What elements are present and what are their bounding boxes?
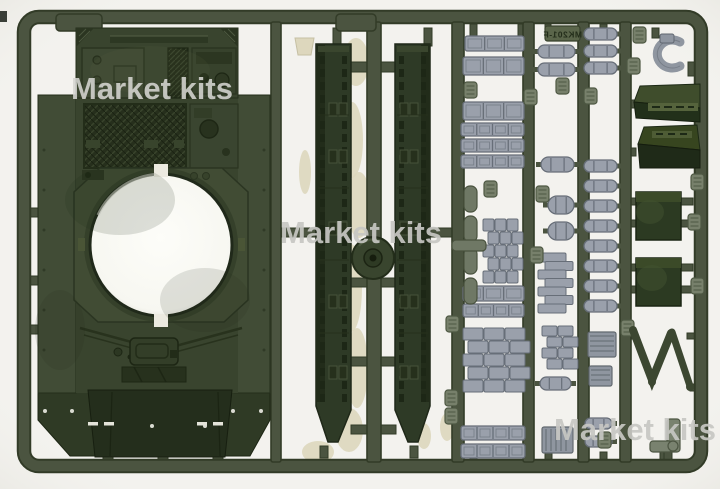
part-number-lug bbox=[464, 82, 477, 98]
sprue-gate bbox=[410, 446, 418, 458]
watermark-bottom-right: Market kits bbox=[554, 412, 716, 447]
cross-part bbox=[452, 240, 486, 251]
watermark-top-left: Market kits bbox=[71, 71, 233, 106]
track-link-stack bbox=[483, 219, 523, 283]
cylinder-part bbox=[579, 300, 622, 312]
skirt-hinge bbox=[400, 295, 408, 308]
part-number-lug bbox=[484, 181, 497, 197]
sprue-gate bbox=[380, 278, 396, 287]
skirt-hinge bbox=[329, 295, 337, 308]
cylinder-part bbox=[579, 260, 622, 272]
skirt-hinge bbox=[339, 295, 347, 308]
track-link-strip bbox=[461, 123, 524, 136]
capsule-part bbox=[464, 278, 477, 304]
skirt-hinge bbox=[339, 150, 347, 163]
track-link-strip bbox=[463, 304, 524, 317]
skirt-hinge bbox=[400, 366, 408, 379]
cylinder-part bbox=[579, 62, 622, 74]
angled-stowage-box-2 bbox=[638, 125, 700, 168]
skirt-hinge bbox=[329, 150, 337, 163]
track-link-strip bbox=[465, 36, 524, 51]
ribbed-box-part bbox=[588, 332, 616, 357]
part-number-lug bbox=[691, 278, 704, 294]
track-link-stack bbox=[463, 328, 530, 392]
beige-fragment bbox=[295, 38, 314, 55]
skirt-hinge bbox=[329, 366, 337, 379]
cylinder-part bbox=[579, 220, 622, 232]
part-number-lug bbox=[691, 174, 704, 190]
track-link-strip bbox=[463, 102, 524, 120]
cylinder-part bbox=[579, 240, 622, 252]
sprue-gate bbox=[380, 357, 396, 366]
track-link-strip bbox=[461, 444, 525, 458]
skirt-hinge bbox=[339, 366, 347, 379]
flat-stowage-box-2 bbox=[636, 258, 681, 306]
sprue-code-tag: MK201-F bbox=[543, 26, 582, 41]
watermark-center: Market kits bbox=[280, 215, 442, 250]
skirt-hinge bbox=[410, 295, 418, 308]
cylinder-part bbox=[579, 160, 622, 172]
sprue-photo: MK201-F Market kits Market kits Market k… bbox=[0, 0, 720, 489]
idler-disc-hole bbox=[370, 255, 377, 262]
sprue-code-text: MK201-F bbox=[543, 30, 582, 40]
cylinder-part bbox=[579, 180, 622, 192]
capsule-part bbox=[464, 248, 477, 274]
sprue-gate bbox=[351, 425, 368, 434]
sprue-gate bbox=[320, 446, 328, 458]
sprue-gate bbox=[351, 278, 368, 287]
cylinder-part bbox=[533, 63, 580, 76]
vertical-runner bbox=[523, 22, 534, 462]
cylinder-part bbox=[579, 280, 622, 292]
vertical-runner bbox=[620, 22, 631, 462]
cylinder-part bbox=[579, 45, 622, 57]
sprue-gate bbox=[681, 198, 693, 205]
sprue-gate bbox=[380, 425, 396, 434]
skirt-hinge bbox=[400, 103, 408, 116]
track-link-strip bbox=[461, 139, 524, 152]
part-number-lug bbox=[627, 58, 640, 74]
part-number-lug bbox=[446, 316, 459, 332]
cylinder-part bbox=[535, 377, 576, 390]
sprue-scene: MK201-F Market kits Market kits Market k… bbox=[0, 0, 720, 489]
skirt-hinge bbox=[410, 150, 418, 163]
part-number-lug bbox=[524, 89, 537, 105]
cylinder-part bbox=[536, 157, 579, 172]
track-link-stack bbox=[542, 326, 578, 369]
photo-edge-tab bbox=[0, 11, 7, 22]
sprue-gate bbox=[652, 28, 659, 38]
ribbed-box-part bbox=[589, 366, 612, 386]
track-link-strip bbox=[461, 426, 525, 440]
part-number-lug bbox=[584, 88, 597, 104]
sprue-gate bbox=[470, 24, 477, 37]
part-number-lug bbox=[633, 27, 646, 43]
part-number-lug bbox=[556, 78, 569, 94]
part-number-lug bbox=[445, 390, 458, 406]
skirt-hinge bbox=[329, 103, 337, 116]
flat-stowage-box-1 bbox=[636, 192, 681, 240]
track-link-strip bbox=[463, 57, 524, 75]
skirt-hinge bbox=[410, 103, 418, 116]
runner-sleeve bbox=[336, 14, 376, 31]
beige-smudge bbox=[299, 150, 311, 194]
skirt-hinge bbox=[339, 103, 347, 116]
skirt-hinge bbox=[410, 366, 418, 379]
cylinder-part bbox=[533, 45, 580, 58]
sprue-gate bbox=[681, 264, 693, 271]
sprue-gate bbox=[351, 357, 368, 366]
capsule-part bbox=[464, 216, 477, 242]
angled-stowage-box-1 bbox=[634, 84, 700, 122]
part-number-lug bbox=[445, 408, 458, 424]
part-number-lug bbox=[530, 247, 543, 263]
cylinder-part bbox=[579, 200, 622, 212]
part-number-lug bbox=[536, 186, 549, 202]
cylinder-part bbox=[579, 28, 622, 40]
track-link-strip bbox=[461, 155, 524, 168]
skirt-hinge bbox=[400, 150, 408, 163]
capsule-part bbox=[464, 186, 477, 212]
part-number-lug bbox=[688, 214, 701, 230]
